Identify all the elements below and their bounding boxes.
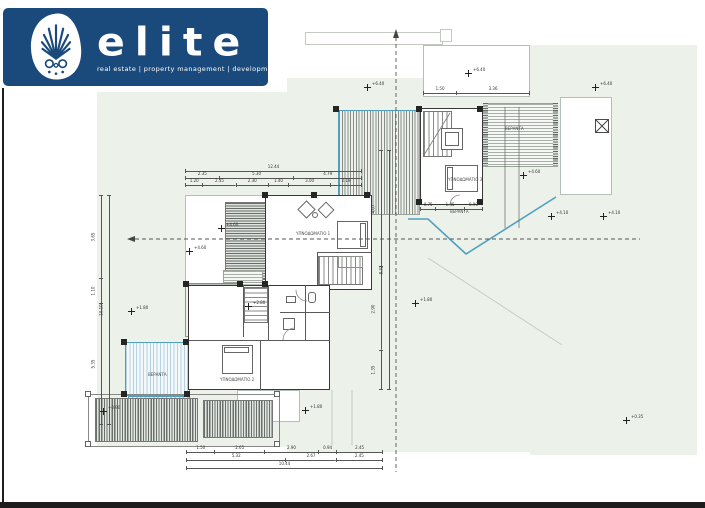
dim-segment: 1.50 <box>423 91 456 95</box>
unit1-stair-diagonal <box>424 113 450 155</box>
dim-segment: 1.20 <box>185 183 202 187</box>
dim-segment: 0.94 <box>318 450 336 454</box>
dim-segment: 1.45 <box>435 207 464 211</box>
dim-label: 5.30 <box>252 171 261 176</box>
floor-plan-image: ΥΠΝΟΔΩΜΑΤΙΟ 1 ΥΠΝΟΔΩΜΑΤΙΟ 2 ΥΠΝΟΔΩΜΑΤΙΟ … <box>0 0 705 508</box>
elevation-marker: +2.80 <box>245 303 252 310</box>
dim-label: 3.36 <box>489 86 498 91</box>
dim-label: 0.90 <box>469 202 478 207</box>
dim-segment: 3.65 <box>99 195 103 278</box>
dim-segment: 4.79 <box>293 176 362 180</box>
dim-label: 1.40 <box>274 178 283 183</box>
elevation-label: +6.40 <box>473 67 485 72</box>
elevation-label: +4.60 <box>194 245 206 250</box>
dim-segment: 1.50 <box>186 450 214 454</box>
elevation-label: +4.60 <box>528 169 540 174</box>
elevation-marker: +0.90 <box>100 408 107 415</box>
dim-segment: 3.00 <box>288 183 330 187</box>
dim-segment: 2.30 <box>236 183 268 187</box>
elite-logo: elite real estate | property management … <box>3 8 268 86</box>
elevation-marker: +4.60 <box>186 248 193 255</box>
elevation-marker: +6.40 <box>465 70 472 77</box>
elevation-label: +6.40 <box>600 81 612 86</box>
dim-segment: 2.67 <box>285 458 335 462</box>
dim-label: 4.79 <box>323 171 332 176</box>
dim-segment: 8.32 <box>387 150 391 390</box>
dim-chain-bottom-3: 10.44 <box>186 466 383 470</box>
dim-segment: 0.75 <box>420 207 435 211</box>
brand-wordmark: elite <box>97 23 280 61</box>
dim-chain-unit1-bottom: 0.751.450.90 <box>420 207 483 211</box>
dim-chain-top-total: 12.44 <box>185 169 362 173</box>
elevation-marker: +1.80 <box>128 308 135 315</box>
door-arc <box>296 290 307 301</box>
dim-label: 5.35 <box>91 360 96 369</box>
room-label: ΥΠΝΟΔΩΜΑΤΙΟ 1 <box>296 231 330 236</box>
dim-chain-right-2: 8.32 <box>387 150 391 390</box>
elevation-label: +2.80 <box>253 300 265 305</box>
elevation-marker: +4.60 <box>218 225 225 232</box>
dim-label: 1.50 <box>436 86 445 91</box>
room-label: ΥΠΝΟΔΩΜΑΤΙΟ 2 <box>220 377 254 382</box>
dim-segment: 2.35 <box>202 183 235 187</box>
elevation-marker: +0.35 <box>623 417 630 424</box>
dim-label: 4.07 <box>371 204 376 213</box>
deck-label: ΒΕΡΑΝΤΑ <box>148 372 167 377</box>
room-label: ΥΠΝΟΔΩΜΑΤΙΟ 3 <box>448 177 482 182</box>
elevation-label: +0.35 <box>631 414 643 419</box>
landscape-line <box>428 258 562 345</box>
dim-segment: 2.45 <box>336 458 383 462</box>
dim-segment: 4.07 <box>379 150 383 266</box>
dim-label: 2.90 <box>371 304 376 313</box>
elevation-marker: +6.40 <box>592 84 599 91</box>
elevation-marker: +1.80 <box>412 300 419 307</box>
dim-label: 5.32 <box>232 453 241 458</box>
dim-label: 12.44 <box>268 164 279 169</box>
elevation-label: +6.40 <box>372 81 384 86</box>
dim-segment: 5.32 <box>186 458 285 462</box>
elevation-marker: +4.60 <box>520 172 527 179</box>
dim-label: 8.32 <box>379 266 384 275</box>
frame-edge-bottom <box>0 502 705 508</box>
dim-segment: 3.36 <box>456 91 530 95</box>
dim-segment: 1.10 <box>99 278 103 304</box>
dim-segment: 1.40 <box>268 183 288 187</box>
dim-label: 0.75 <box>424 202 433 207</box>
dim-chain-left-2: 10.10 <box>107 195 111 425</box>
dim-label: 2.30 <box>248 178 257 183</box>
dim-chain-top-fine: 1.202.352.301.403.002.19 <box>185 183 362 187</box>
arrow-up <box>393 29 399 38</box>
elevation-label: +1.80 <box>420 297 432 302</box>
dim-label: 2.90 <box>287 445 296 450</box>
dim-segment: 2.19 <box>330 183 362 187</box>
elevation-marker: +6.40 <box>364 84 371 91</box>
dim-label: 1.35 <box>371 365 376 374</box>
dim-segment: 5.35 <box>99 303 103 425</box>
elevation-marker: +4.10 <box>548 213 555 220</box>
dim-label: 2.19 <box>342 178 351 183</box>
dim-label: 3.00 <box>305 178 314 183</box>
frame-edge-left <box>2 88 4 508</box>
elevation-label: +0.90 <box>108 405 120 410</box>
dim-label: 1.10 <box>91 287 96 296</box>
arrow-left <box>127 236 135 242</box>
deck-label: ΒΕΡΑΝΤΑ <box>505 126 524 131</box>
landscape-line <box>332 390 352 445</box>
elevation-label: +1.80 <box>310 404 322 409</box>
dim-segment: 2.90 <box>379 266 383 349</box>
dim-label: 2.45 <box>355 453 364 458</box>
elevation-label: +4.10 <box>556 210 568 215</box>
brand-tagline: real estate | property management | deve… <box>97 65 280 73</box>
dim-label: 1.50 <box>196 445 205 450</box>
dim-chain-unit1-top: 1.503.36 <box>423 91 530 95</box>
dim-label: 0.94 <box>323 445 332 450</box>
dim-segment: 10.10 <box>107 195 111 425</box>
dim-label: 2.35 <box>198 171 207 176</box>
dim-label: 2.65 <box>235 445 244 450</box>
elevation-marker: +1.80 <box>302 407 309 414</box>
dim-label: 3.65 <box>91 232 96 241</box>
dim-segment: 0.90 <box>464 207 483 211</box>
dim-label: 2.35 <box>215 178 224 183</box>
dim-segment: 12.44 <box>185 169 362 173</box>
elevation-marker: +4.10 <box>600 213 607 220</box>
palmette-icon <box>25 12 87 82</box>
dim-label: 10.10 <box>99 304 104 315</box>
dim-label: 2.67 <box>307 453 316 458</box>
dim-label: 2.45 <box>355 445 364 450</box>
dim-segment: 10.44 <box>186 466 383 470</box>
dim-chain-bottom-1: 1.502.652.900.942.45 <box>186 450 383 454</box>
elevation-label: +1.80 <box>136 305 148 310</box>
dim-label: 1.20 <box>190 178 199 183</box>
door-arc <box>283 328 295 340</box>
dim-segment: 1.35 <box>379 350 383 390</box>
elevation-label: +4.60 <box>226 222 238 227</box>
dim-label: 10.44 <box>279 461 290 466</box>
dim-label: 1.45 <box>446 202 455 207</box>
elevation-label: +4.10 <box>608 210 620 215</box>
